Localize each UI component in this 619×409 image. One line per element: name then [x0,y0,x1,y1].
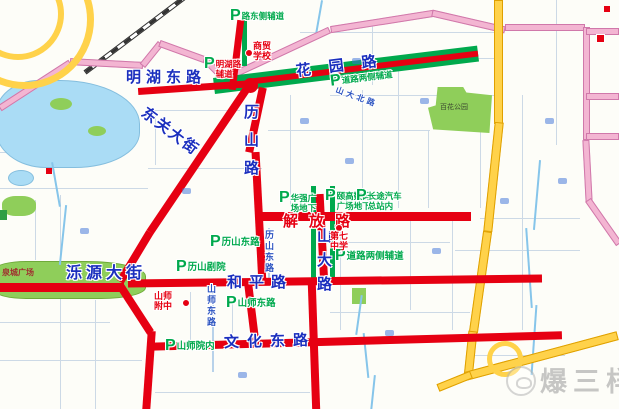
parking-label-minghu-fudao: P 明湖路辅道 [204,56,241,79]
street-line [452,218,453,330]
poi-square [46,168,52,174]
parking-label-lishandong-road: P 历山东路 [210,234,260,249]
parking-label-lushandong-side: P 路东侧辅道 [230,8,284,23]
road-label-lishan: 历山路 [240,104,261,188]
road-label-heping: 和平路 [227,271,293,292]
route-badge [345,158,354,164]
parking-label-bus-terminal: P 长途汽车总站内 [356,188,402,211]
street-line [335,242,450,243]
parking-text: 场地下 [291,204,317,214]
route-badge [80,228,89,234]
ring-road-segment [586,93,619,100]
route-badge [238,372,247,378]
street-line [0,188,148,189]
poi-text: 学校 [253,51,271,61]
parking-p-icon: P [279,190,290,205]
poi-square [596,34,605,43]
ring-road-segment [505,24,585,31]
route-badge [558,178,567,184]
poi-text: 第七 [330,231,348,241]
parking-text: 历山剧院 [188,263,226,273]
poi-shangmao-school: 商贸 学校 [253,41,271,61]
lake-island [50,98,72,110]
area-label-quancheng-square: 泉城广场 [2,267,34,278]
lake-island [88,126,106,136]
pond [8,170,34,186]
route-badge [300,118,309,124]
parking-label-lishan-theatre: P 历山剧院 [176,259,226,274]
street-line [428,130,429,208]
poi-text: 商贸 [253,41,271,51]
route-badge [385,330,394,336]
parking-p-icon: P [226,295,237,310]
ring-road-segment [330,10,434,33]
street-line [0,322,110,323]
street-line [522,95,523,330]
parking-label-shanshidong-road: P 山师东路 [226,295,276,310]
parking-text: 辅道 [216,70,242,80]
river [51,162,61,207]
road-label-wenhua: 文化东路 [224,329,317,352]
street-line [480,218,580,219]
expressway-segment [483,122,503,232]
route-badge [352,58,361,64]
expressway-segment [437,371,473,392]
poi-text: 附中 [154,301,172,311]
street-line [398,60,399,208]
parking-p-icon: P [329,73,341,89]
road-label-luoyuan: 泺源大街 [66,259,146,283]
route-badge [545,118,554,124]
street-line [0,360,142,361]
small-park [2,196,36,216]
parking-p-icon: P [230,8,241,23]
street-line [455,250,580,251]
watermark-logo [506,366,536,396]
river [525,228,533,308]
poi-text: 山师 [154,291,172,301]
ring-road-segment [585,198,619,246]
poi-dot-shanshi-fuzhong [182,299,190,307]
ring-road-segment [158,40,205,63]
poi-square [604,6,610,12]
street-line [95,300,96,409]
street-line [290,95,291,205]
river [370,375,376,409]
street-line [410,218,411,310]
river [533,160,541,230]
parking-p-icon: P [325,188,336,203]
street-line [190,292,191,340]
street-line [556,0,557,145]
parking-p-icon: P [165,338,176,353]
parking-text: 历山东路 [222,238,260,248]
poi-text: 中学 [330,241,348,251]
route-badge [420,98,429,104]
expressway-segment [494,0,503,124]
street-line [60,195,61,409]
area-label-baihua-park: 百花公园 [440,102,468,112]
ring-road-segment [583,27,590,140]
parking-text: 路东侧辅道 [242,12,285,22]
road-luoyuan [0,283,124,292]
poi-dot-shangmao-school [245,49,253,57]
ring-road-segment [586,133,619,140]
parking-label-huaqiang-plaza: P 华强广场地下 [279,190,316,213]
parking-p-icon: P [176,259,187,274]
street-line [155,392,310,393]
street-label-lishandong: 历山东路 [263,230,276,274]
parking-label-shanshi-campus: P 山师院内 [165,338,215,353]
parking-text: 山师院内 [177,342,215,352]
watermark-text: 爆三样 [540,360,619,399]
poi-square [0,210,7,220]
route-badge [500,198,509,204]
street-line [330,312,470,313]
road-label-minghu: 明湖东路 [126,66,206,87]
street-line [480,130,481,208]
route-badge [182,188,191,194]
ring-road-segment [582,140,592,202]
street-line [268,130,430,131]
city-road-map: 明湖东路 东关大街 历山路 花园路 解放路 山大路 和平路 泺源大街 文化东路 … [0,0,619,409]
parking-text: 山师东路 [238,299,276,309]
parking-text: 道路两侧辅道 [341,70,393,86]
parking-p-icon: P [210,234,221,249]
parking-p-icon: P [204,56,215,71]
route-badge [432,248,441,254]
parking-text: 道路两侧辅道 [347,252,404,262]
parking-text: 总站内 [368,202,402,212]
poi-no7-middle-school: 第七 中学 [330,231,348,251]
street-label-shanshidong: 山师东路 [205,284,218,328]
parking-p-icon: P [356,188,367,203]
poi-shanshi-fuzhong: 山师 附中 [154,291,172,311]
